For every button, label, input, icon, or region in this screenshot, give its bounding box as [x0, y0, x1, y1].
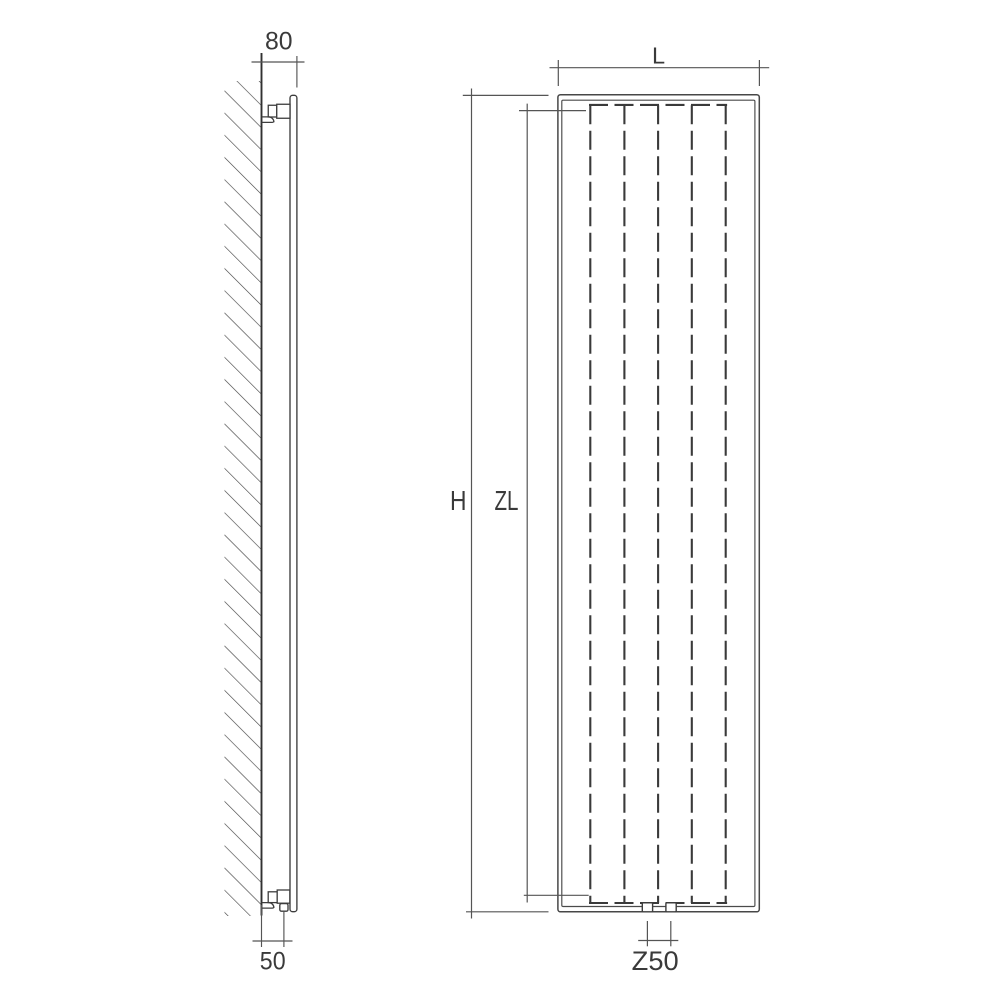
- svg-text:50: 50: [260, 947, 286, 975]
- svg-text:80: 80: [265, 28, 293, 56]
- svg-text:ZL: ZL: [495, 485, 519, 516]
- svg-text:H: H: [450, 485, 467, 516]
- svg-text:Z50: Z50: [632, 946, 679, 976]
- svg-text:L: L: [652, 42, 665, 68]
